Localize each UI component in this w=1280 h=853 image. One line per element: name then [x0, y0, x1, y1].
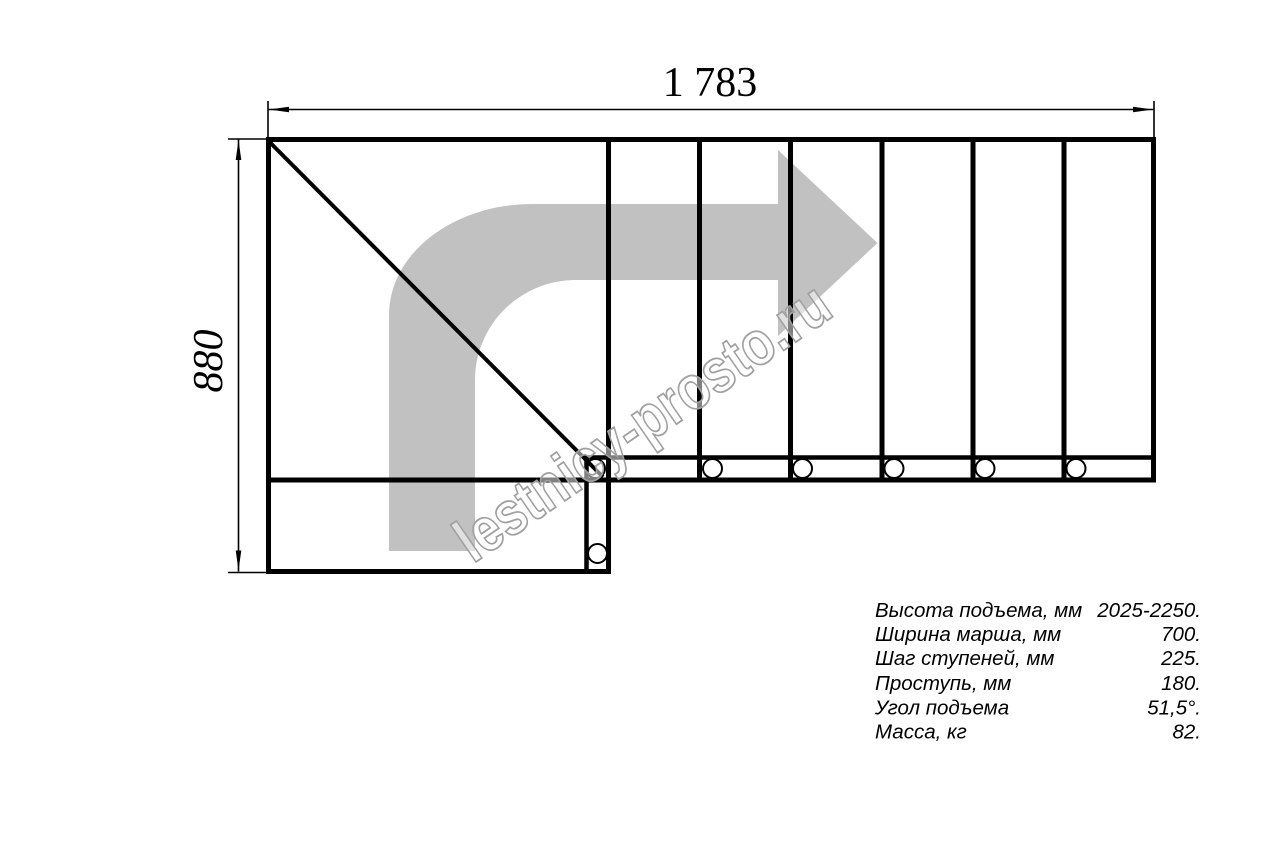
svg-text:Угол подъема: Угол подъема: [874, 697, 1009, 720]
svg-text:82.: 82.: [1173, 721, 1202, 744]
svg-text:1 783: 1 783: [663, 60, 758, 106]
svg-text:51,5°.: 51,5°.: [1147, 697, 1201, 720]
svg-text:880: 880: [186, 330, 232, 393]
svg-text:Высота подъема, мм: Высота подъема, мм: [875, 599, 1082, 622]
svg-text:225.: 225.: [1160, 647, 1201, 670]
svg-text:2025-2250.: 2025-2250.: [1096, 599, 1201, 622]
svg-text:Проступь, мм: Проступь, мм: [875, 672, 1011, 695]
svg-text:180.: 180.: [1161, 672, 1201, 695]
svg-text:Масса, кг: Масса, кг: [875, 721, 967, 744]
svg-text:Шаг ступеней, мм: Шаг ступеней, мм: [875, 647, 1054, 670]
svg-text:700.: 700.: [1161, 623, 1201, 646]
svg-text:Ширина марша, мм: Ширина марша, мм: [875, 623, 1061, 646]
